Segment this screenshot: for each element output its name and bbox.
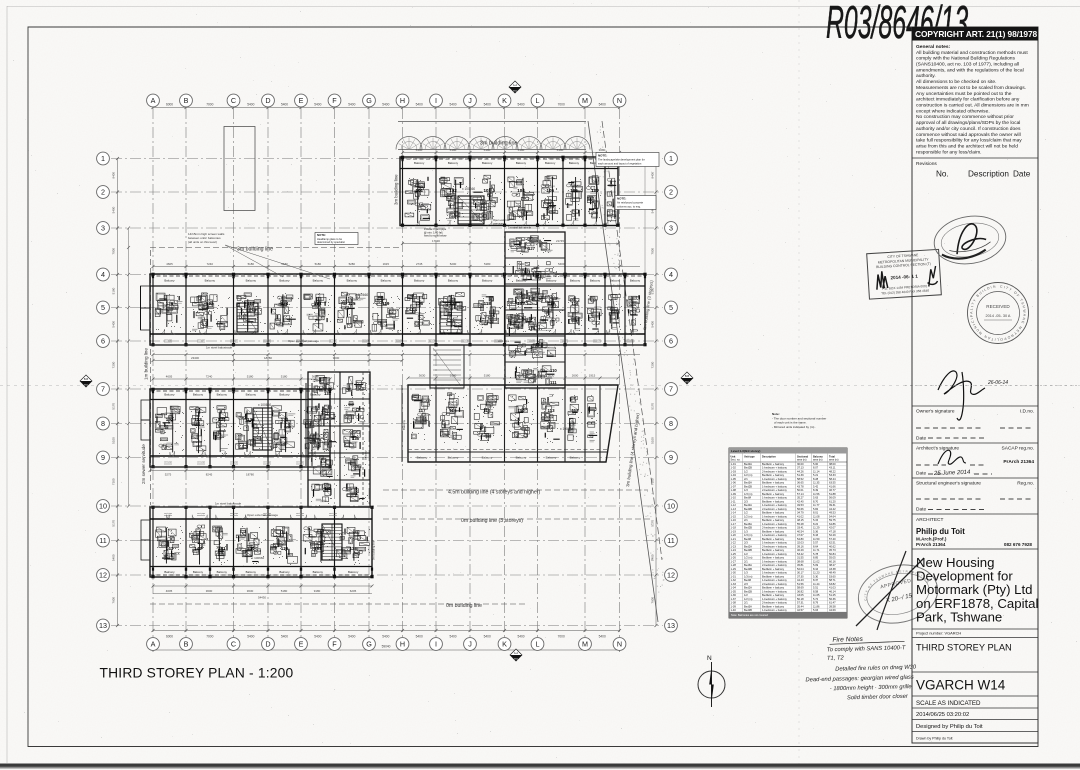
svg-text:Note: Balconies are not covere: Note: Balconies are not covered [731, 613, 768, 617]
svg-text:Structural engineer's signatur: Structural engineer's signature [916, 481, 981, 487]
svg-text:39.58: 39.58 [829, 605, 836, 609]
svg-text:2: 2 [101, 188, 105, 197]
svg-text:9: 9 [101, 453, 105, 462]
svg-text:5.15: 5.15 [813, 518, 819, 522]
svg-text:Bedfarm + balcony: Bedfarm + balcony [762, 567, 785, 571]
svg-text:7000: 7000 [206, 635, 213, 639]
svg-text:Headlamp glass to be: Headlamp glass to be [317, 237, 343, 241]
svg-text:4605: 4605 [166, 262, 173, 266]
svg-text:- Mirrored units indicated by: - Mirrored units indicated by (m) . [772, 425, 816, 429]
svg-text:1/2 (m): 1/2 (m) [744, 473, 752, 477]
svg-text:141: 141 [218, 546, 226, 551]
svg-text:41.03: 41.03 [829, 586, 836, 590]
svg-text:Bedfarm + balcony: Bedfarm + balcony [762, 511, 785, 515]
svg-text:10: 10 [99, 502, 107, 511]
svg-text:8.01: 8.01 [813, 511, 819, 515]
svg-text:Balcony: Balcony [364, 450, 368, 460]
svg-text:53.60: 53.60 [829, 575, 836, 579]
svg-text:7000: 7000 [111, 248, 115, 255]
svg-text:Bedfarm + balcony: Bedfarm + balcony [762, 605, 785, 609]
svg-text:5400: 5400 [111, 321, 115, 328]
svg-text:58.69: 58.69 [797, 586, 804, 590]
svg-text:area (m): area (m) [829, 459, 839, 462]
svg-text:116: 116 [449, 408, 457, 413]
svg-text:M.Arch.(Prof.): M.Arch.(Prof.) [916, 537, 947, 542]
svg-text:NOTE:: NOTE: [317, 233, 326, 237]
svg-text:5400: 5400 [416, 103, 423, 107]
svg-text:vent pipe: vent pipe [329, 512, 338, 515]
svg-text:of each unit is the same.: of each unit is the same. [774, 421, 807, 425]
svg-text:1/2 (m): 1/2 (m) [744, 515, 752, 519]
svg-text:1/3 (m): 1/3 (m) [744, 492, 752, 496]
svg-text:5200: 5200 [450, 262, 457, 266]
svg-text:44.42: 44.42 [829, 507, 836, 511]
svg-text:vent pipe: vent pipe [626, 339, 635, 342]
svg-text:5400: 5400 [247, 103, 254, 107]
svg-text:55.05: 55.05 [829, 556, 836, 560]
svg-text:Balcony: Balcony [610, 278, 621, 282]
svg-text:x 100660: x 100660 [355, 293, 368, 297]
svg-text:101: 101 [415, 188, 423, 193]
svg-text:Bedfarm + balcony: Bedfarm + balcony [762, 530, 785, 534]
svg-text:amendments, and with the regul: amendments, and with the regulations of … [916, 67, 1024, 73]
svg-text:9000: 9000 [333, 356, 340, 360]
svg-text:21745: 21745 [556, 239, 564, 243]
svg-text:Balcony: Balcony [570, 278, 581, 282]
svg-text:Bedfarm + balcony: Bedfarm + balcony [762, 575, 785, 579]
svg-text:34.79: 34.79 [797, 511, 804, 515]
svg-text:5400: 5400 [314, 635, 321, 639]
svg-text:Bed2B: Bed2B [744, 608, 752, 612]
svg-text:18780: 18780 [246, 473, 254, 477]
svg-text:Bed3A: Bed3A [744, 563, 752, 567]
svg-text:1-bedroom + balcony: 1-bedroom + balcony [762, 477, 788, 481]
svg-text:passage: passage [493, 222, 504, 225]
svg-text:F: F [332, 96, 337, 105]
svg-text:Owner's signature: Owner's signature [916, 409, 955, 415]
svg-text:N: N [617, 640, 622, 649]
svg-text:Bedfarm + balcony: Bedfarm + balcony [762, 492, 785, 496]
svg-text:1-34: 1-34 [731, 586, 737, 590]
svg-text:2/1: 2/1 [744, 560, 748, 564]
svg-text:Bedfarm + balcony: Bedfarm + balcony [762, 473, 785, 477]
svg-text:5: 5 [101, 303, 105, 312]
svg-text:1/3: 1/3 [744, 571, 748, 575]
svg-text:vent pipe: vent pipe [498, 339, 510, 343]
svg-text:5400: 5400 [558, 262, 565, 266]
svg-text:7000: 7000 [558, 103, 565, 107]
svg-text:32.03: 32.03 [797, 541, 804, 545]
svg-text:vent pipe: vent pipe [329, 339, 338, 342]
svg-text:43.38: 43.38 [829, 567, 836, 571]
svg-text:38.68: 38.68 [797, 560, 804, 564]
svg-text:columns acc. to eng.: columns acc. to eng. [617, 204, 641, 208]
svg-text:PrArch 21364: PrArch 21364 [1003, 459, 1034, 465]
svg-text:5180: 5180 [557, 148, 564, 152]
svg-text:Philip du Toit: Philip du Toit [916, 527, 965, 536]
svg-text:5180: 5180 [247, 374, 254, 378]
svg-text:1-06: 1-06 [731, 481, 737, 485]
svg-text:Balcony: Balcony [246, 278, 257, 282]
svg-text:11.35: 11.35 [813, 481, 820, 485]
svg-text:Balcony: Balcony [313, 570, 324, 574]
svg-text:131: 131 [324, 391, 332, 396]
svg-text:106: 106 [570, 188, 578, 193]
svg-text:132: 132 [166, 417, 174, 422]
svg-text:142: 142 [194, 546, 202, 551]
svg-text:0m building line: 0m building line [372, 540, 376, 560]
svg-text:General notes:: General notes: [916, 44, 951, 50]
svg-text:Designed by Philip du Toit: Designed by Philip du Toit [916, 724, 983, 730]
svg-text:5400: 5400 [112, 206, 116, 213]
svg-text:x 100660: x 100660 [252, 556, 265, 560]
svg-text:5400: 5400 [517, 103, 524, 107]
svg-text:Balcony: Balcony [402, 419, 406, 430]
svg-text:1-bedroom + balcony: 1-bedroom + balcony [762, 590, 788, 594]
svg-text:vent pipe: vent pipe [461, 339, 470, 342]
svg-text:8.22: 8.22 [813, 522, 819, 526]
svg-text:Reg.no.: Reg.no. [1017, 481, 1034, 487]
svg-text:Balcony: Balcony [279, 278, 290, 282]
svg-text:57.14: 57.14 [797, 492, 804, 496]
svg-text:5180: 5180 [281, 589, 288, 593]
svg-text:Bed2A: Bed2A [744, 462, 752, 466]
svg-text:1-21: 1-21 [731, 537, 737, 541]
svg-text:Bedfarm + balcony: Bedfarm + balcony [762, 593, 785, 597]
svg-text:5170: 5170 [650, 403, 654, 410]
svg-text:I: I [435, 640, 437, 649]
svg-text:57.31: 57.31 [797, 601, 804, 605]
svg-text:M: M [582, 640, 588, 649]
svg-text:N: N [707, 655, 712, 662]
svg-text:M: M [582, 96, 588, 105]
svg-text:43.78: 43.78 [797, 484, 804, 488]
svg-text:56.09: 56.09 [829, 496, 836, 500]
svg-text:1-bedroom + balcony: 1-bedroom + balcony [762, 597, 788, 601]
svg-text:Balcony: Balcony [448, 456, 459, 460]
svg-text:43.05: 43.05 [797, 593, 804, 597]
svg-text:THIRD STOREY PLAN - 1:200: THIRD STOREY PLAN - 1:200 [100, 666, 294, 681]
svg-text:1-30: 1-30 [731, 571, 737, 575]
svg-text:(all units on this level): (all units on this level) [188, 240, 217, 244]
svg-text:vent pipe: vent pipe [197, 512, 206, 515]
svg-text:2/1: 2/1 [744, 477, 748, 481]
svg-text:50.84: 50.84 [829, 552, 836, 556]
svg-text:x 100660: x 100660 [462, 187, 475, 191]
svg-text:0m building line: 0m building line [446, 603, 482, 609]
svg-text:Bed3A: Bed3A [744, 605, 752, 609]
svg-text:4605: 4605 [166, 374, 173, 378]
svg-text:vent pipe: vent pipe [197, 339, 206, 342]
svg-text:1-32: 1-32 [731, 578, 737, 582]
svg-text:56.66: 56.66 [797, 507, 804, 511]
svg-text:7600: 7600 [650, 597, 654, 604]
svg-text:43.11: 43.11 [829, 466, 836, 470]
svg-text:Park, Tshwane: Park, Tshwane [916, 609, 1002, 624]
svg-text:Balcony: Balcony [348, 570, 359, 574]
svg-text:48.15: 48.15 [797, 518, 804, 522]
svg-text:35.27: 35.27 [797, 496, 804, 500]
svg-text:E: E [299, 640, 304, 649]
svg-text:Balcony: Balcony [482, 161, 493, 165]
svg-text:4605: 4605 [166, 589, 173, 593]
svg-text:ARCHITECT: ARCHITECT [916, 517, 944, 523]
svg-text:2-bedroom + balcony: 2-bedroom + balcony [762, 507, 788, 511]
svg-text:5.09: 5.09 [813, 563, 819, 567]
svg-text:107: 107 [591, 188, 599, 193]
svg-text:137: 137 [314, 546, 322, 551]
svg-text:1-15: 1-15 [731, 515, 737, 519]
svg-text:105: 105 [546, 188, 554, 193]
svg-text:62.51: 62.51 [829, 541, 836, 545]
svg-text:103: 103 [483, 188, 491, 193]
svg-text:8.79: 8.79 [813, 601, 819, 605]
svg-text:2/1: 2/1 [744, 601, 748, 605]
svg-text:1-38: 1-38 [731, 601, 737, 605]
svg-text:1-14: 1-14 [731, 511, 737, 515]
svg-text:1/2: 1/2 [744, 511, 748, 515]
svg-text:11: 11 [667, 536, 674, 545]
svg-text:1-19: 1-19 [731, 530, 737, 534]
svg-text:1-bedroom + balcony: 1-bedroom + balcony [762, 571, 788, 575]
svg-text:Balcony: Balcony [448, 161, 459, 165]
svg-text:5.72: 5.72 [813, 597, 819, 601]
svg-text:A: A [151, 96, 156, 105]
svg-text:37.30: 37.30 [797, 575, 804, 579]
svg-text:1m steel balustrade: 1m steel balustrade [206, 346, 233, 350]
svg-text:7000: 7000 [558, 635, 565, 639]
svg-text:9180: 9180 [314, 589, 321, 593]
svg-text:1m steel balustrade: 1m steel balustrade [508, 226, 532, 230]
svg-text:3m building line: 3m building line [480, 141, 517, 147]
svg-text:135: 135 [352, 436, 360, 441]
svg-text:1/2 (m): 1/2 (m) [744, 597, 752, 601]
svg-text:5.30: 5.30 [813, 575, 819, 579]
svg-text:8.43: 8.43 [813, 533, 819, 537]
svg-text:Bedfarm + balcony: Bedfarm + balcony [762, 586, 785, 590]
svg-text:1-07: 1-07 [731, 484, 737, 488]
svg-text:5400: 5400 [416, 635, 423, 639]
svg-text:115: 115 [483, 408, 491, 413]
svg-text:5280: 5280 [349, 262, 356, 266]
svg-text:57.40: 57.40 [829, 537, 836, 541]
svg-text:5180: 5180 [484, 373, 491, 377]
svg-text:arise from this and the archit: arise from this and the architect will n… [916, 143, 1018, 149]
svg-text:39.31: 39.31 [829, 503, 836, 507]
svg-text:Balcony: Balcony [217, 570, 228, 574]
svg-text:1-33: 1-33 [731, 582, 737, 586]
svg-text:8.64: 8.64 [813, 545, 819, 549]
svg-text:4: 4 [101, 270, 105, 279]
svg-text:A-A: A-A [514, 651, 519, 655]
svg-text:vent pipe: vent pipe [164, 461, 173, 464]
svg-text:49.53: 49.53 [797, 503, 804, 507]
svg-text:122: 122 [206, 301, 214, 306]
svg-text:All dimensions to be checked o: All dimensions to be checked on site. [916, 79, 996, 85]
svg-text:5400: 5400 [281, 103, 288, 107]
svg-text:13: 13 [99, 621, 107, 630]
svg-text:G: G [366, 96, 372, 105]
svg-text:C: C [231, 640, 236, 649]
svg-text:Revisions: Revisions [916, 161, 937, 167]
svg-text:PrArch 21364: PrArch 21364 [916, 542, 946, 547]
svg-text:1-17: 1-17 [731, 522, 737, 526]
svg-text:31.55: 31.55 [797, 556, 804, 560]
svg-text:Balcony: Balcony [482, 278, 493, 282]
svg-text:36.82: 36.82 [797, 590, 804, 594]
svg-text:3600: 3600 [206, 589, 213, 593]
svg-text:1-03: 1-03 [731, 469, 737, 473]
svg-text:6000: 6000 [166, 103, 173, 107]
svg-text:Open external passage: Open external passage [247, 513, 278, 517]
svg-text:1m steel balustrade: 1m steel balustrade [215, 502, 242, 506]
svg-text:Balcony: Balcony [193, 570, 204, 574]
svg-text:5.84: 5.84 [813, 507, 819, 511]
svg-text:BedM: BedM [744, 578, 751, 582]
svg-text:5180: 5180 [484, 262, 491, 266]
svg-text:1-bedroom + balcony: 1-bedroom + balcony [762, 522, 788, 526]
svg-text:Balcony: Balcony [164, 570, 175, 574]
svg-text:Balcony: Balcony [569, 161, 580, 165]
svg-text:x 100660: x 100660 [560, 427, 573, 431]
svg-text:128: 128 [528, 296, 536, 301]
svg-text:44.43: 44.43 [797, 578, 804, 582]
svg-text:54.80: 54.80 [797, 537, 804, 541]
svg-text:vent pipe: vent pipe [296, 461, 305, 464]
svg-text:53.42: 53.42 [797, 552, 804, 556]
svg-text:7240: 7240 [207, 262, 214, 266]
svg-text:responsible for any loss/claim: responsible for any loss/claim. [916, 149, 982, 155]
svg-text:H: H [400, 96, 405, 105]
svg-text:COPYRIGHT ART. 21(1) 98/1978: COPYRIGHT ART. 21(1) 98/1978 [915, 29, 1038, 39]
svg-text:42.40: 42.40 [797, 499, 804, 503]
svg-text:8.07: 8.07 [813, 466, 819, 470]
svg-text:J: J [468, 96, 472, 105]
svg-text:area (m): area (m) [813, 459, 823, 462]
svg-text:7200: 7200 [112, 361, 116, 368]
svg-text:authority and/or city council.: authority and/or city council. If constr… [916, 126, 1021, 132]
svg-text:2745: 2745 [416, 262, 423, 266]
svg-text:1-bedroom + balcony: 1-bedroom + balcony [762, 484, 788, 488]
svg-text:x 100660: x 100660 [258, 403, 271, 407]
svg-text:8.58: 8.58 [813, 590, 819, 594]
svg-text:H: H [400, 640, 405, 649]
svg-text:1-bedroom + balcony: 1-bedroom + balcony [762, 552, 788, 556]
svg-text:RECEIVED: RECEIVED [986, 304, 1010, 309]
svg-text:Bedfarm + balcony: Bedfarm + balcony [762, 556, 785, 560]
svg-text:5400: 5400 [416, 148, 423, 152]
svg-text:D: D [265, 640, 270, 649]
svg-text:2014 -05- 30 A: 2014 -05- 30 A [986, 314, 1011, 318]
svg-text:10: 10 [667, 502, 675, 511]
svg-text:Balcony: Balcony [217, 393, 228, 397]
svg-text:46.77: 46.77 [829, 488, 836, 492]
svg-text:vent pipe: vent pipe [164, 339, 173, 342]
svg-text:5180: 5180 [450, 148, 457, 152]
svg-text:50.18: 50.18 [797, 597, 804, 601]
svg-text:47.67: 47.67 [797, 533, 804, 537]
svg-text:No construction may commence w: No construction may commence without pri… [916, 114, 1014, 120]
svg-text:Architect's signature: Architect's signature [916, 446, 959, 452]
svg-text:121: 121 [314, 301, 322, 306]
svg-text:5.57: 5.57 [813, 541, 819, 545]
svg-text:take full responsibility for a: take full responsibility for any loss/cl… [916, 138, 1022, 144]
svg-text:3: 3 [669, 224, 673, 233]
svg-text:E: E [299, 96, 304, 105]
svg-text:vent pipe: vent pipe [428, 339, 437, 342]
svg-text:130: 130 [324, 486, 332, 491]
svg-text:vent pipe: vent pipe [593, 339, 602, 342]
svg-text:Bed2B: Bed2B [744, 526, 752, 530]
svg-text:Any uncertainties must be poin: Any uncertainties must be pointed out to… [916, 91, 1012, 97]
svg-text:1-36: 1-36 [731, 593, 737, 597]
svg-text:44.26: 44.26 [797, 469, 804, 473]
svg-text:Balcony: Balcony [347, 278, 358, 282]
svg-text:Air reinforced concrete: Air reinforced concrete [617, 201, 644, 205]
svg-text:I.D.no.: I.D.no. [1020, 409, 1034, 415]
svg-text:Bed2A: Bed2A [744, 503, 752, 507]
svg-text:44.69: 44.69 [829, 608, 836, 612]
svg-text:6205: 6205 [350, 589, 357, 593]
svg-text:5170: 5170 [111, 403, 115, 410]
svg-text:BedM: BedM [744, 537, 751, 541]
svg-text:1-28: 1-28 [731, 563, 737, 567]
svg-text:1-12: 1-12 [731, 503, 737, 507]
svg-text:46.29: 46.29 [797, 548, 804, 552]
svg-text:2014/06/25 03:20:02: 2014/06/25 03:20:02 [916, 712, 969, 718]
svg-text:1915: 1915 [383, 262, 390, 266]
svg-text:54430: 54430 [258, 595, 266, 599]
svg-text:1: 1 [101, 154, 105, 163]
svg-text:1-39: 1-39 [731, 605, 737, 609]
svg-text:Bed3A: Bed3A [744, 522, 752, 526]
svg-text:3: 3 [101, 224, 105, 233]
svg-text:comply with the National Build: comply with the National Building Regula… [916, 56, 1016, 62]
svg-text:1-27: 1-27 [731, 560, 737, 564]
svg-text:127: 127 [528, 246, 536, 251]
svg-text:vent pipe: vent pipe [263, 339, 272, 342]
svg-text:37.13: 37.13 [797, 466, 804, 470]
svg-text:commence without said approval: commence without said approvals the owne… [916, 132, 1021, 138]
svg-text:136: 136 [281, 546, 289, 551]
svg-text:Date: Date [916, 507, 926, 513]
svg-text:11.50: 11.50 [813, 537, 820, 541]
svg-text:L: L [536, 640, 540, 649]
svg-text:118: 118 [484, 301, 492, 306]
svg-text:111: 111 [550, 380, 557, 385]
svg-text:33.41: 33.41 [797, 526, 804, 530]
svg-text:Date: Date [916, 471, 926, 477]
svg-text:2600: 2600 [572, 373, 579, 377]
svg-text:2m sewer servitude: 2m sewer servitude [141, 444, 146, 484]
svg-text:3080: 3080 [599, 148, 606, 152]
svg-text:6: 6 [669, 337, 673, 346]
svg-text:58.52: 58.52 [797, 477, 804, 481]
svg-text:vent pipe: vent pipe [164, 512, 173, 515]
svg-text:11.29: 11.29 [813, 526, 820, 530]
svg-text:11.23: 11.23 [813, 571, 820, 575]
svg-text:fixed to soffit below: fixed to soffit below [424, 234, 447, 238]
svg-text:5.78: 5.78 [813, 552, 819, 556]
svg-text:112: 112 [571, 408, 579, 413]
svg-text:2/3: 2/3 [744, 541, 748, 545]
svg-text:45.81: 45.81 [797, 563, 804, 567]
svg-text:48.49: 48.49 [829, 571, 836, 575]
svg-text:Description: Description [968, 170, 1009, 179]
svg-text:N: N [617, 96, 622, 105]
svg-text:each amount and layout of vege: each amount and layout of vegetation [598, 161, 642, 165]
svg-text:construction is carried out. A: construction is carried out. All dimensi… [916, 103, 1029, 109]
